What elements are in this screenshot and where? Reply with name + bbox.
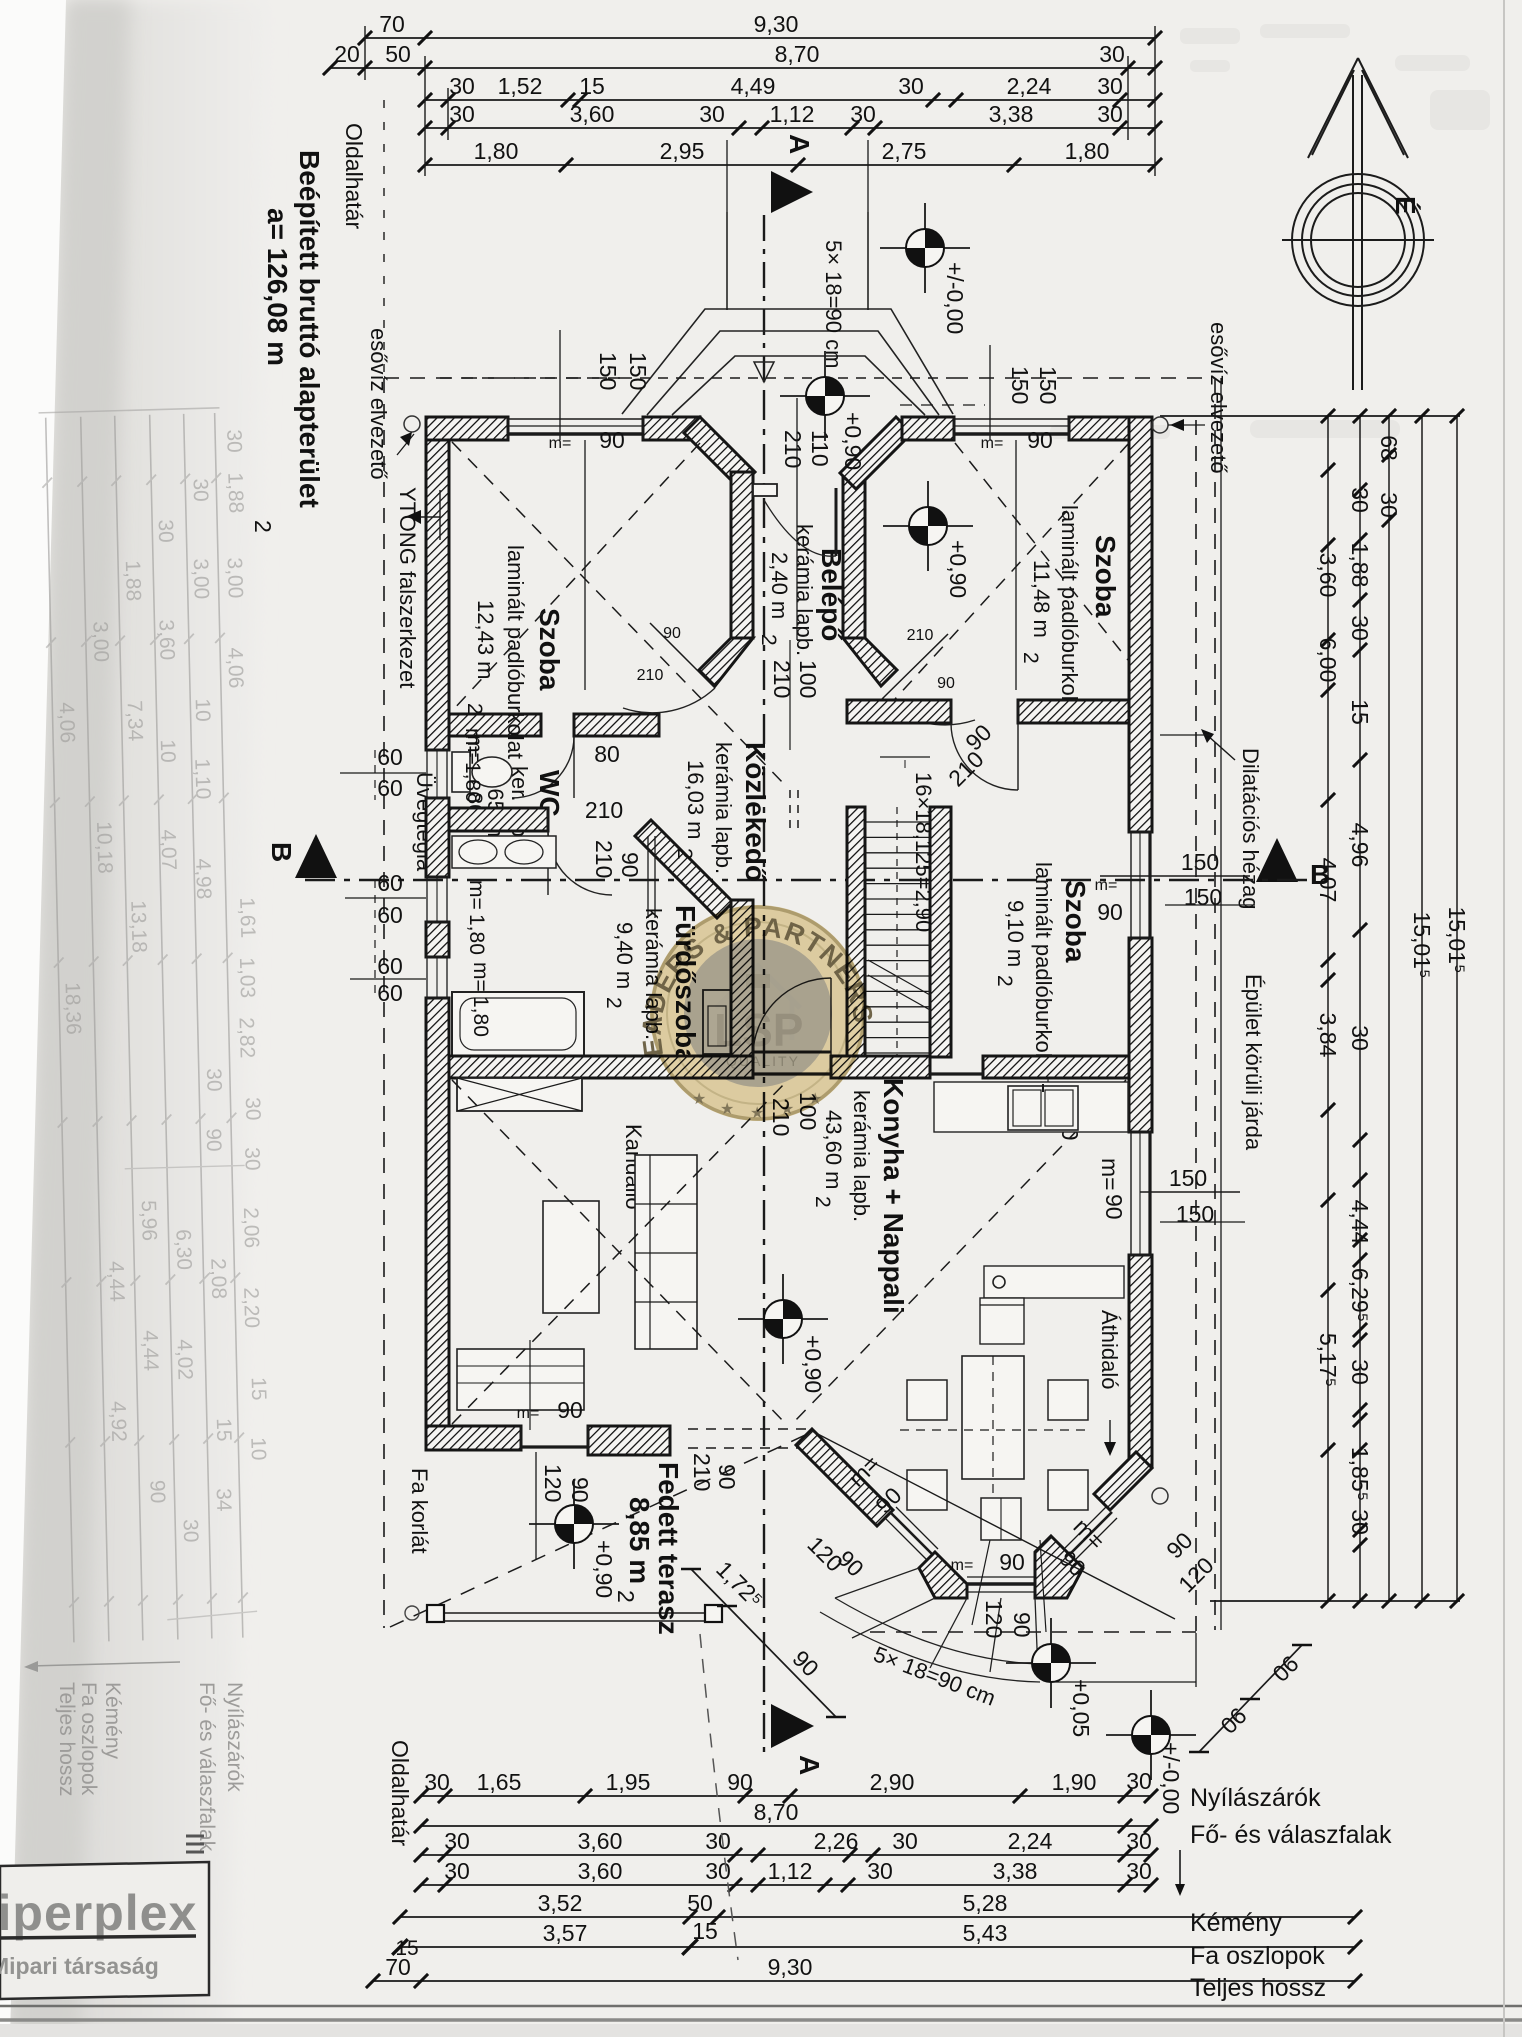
svg-text:+/-0,00: +/-0,00 xyxy=(942,262,968,334)
svg-text:B: B xyxy=(266,842,297,862)
svg-text:60: 60 xyxy=(377,953,403,979)
svg-text:2,06: 2,06 xyxy=(239,1207,263,1249)
svg-text:43,60 m: 43,60 m xyxy=(821,1110,846,1190)
svg-text:Oldalhatár: Oldalhatár xyxy=(341,123,367,229)
svg-text:4,06: 4,06 xyxy=(55,702,79,744)
svg-text:90: 90 xyxy=(937,675,955,692)
svg-text:+0,90: +0,90 xyxy=(800,1335,826,1393)
svg-text:18,36: 18,36 xyxy=(60,982,84,1035)
svg-text:1,80: 1,80 xyxy=(469,996,492,1037)
svg-text:laminált padlóburkolat: laminált padlóburkolat xyxy=(1057,505,1082,719)
svg-text:30: 30 xyxy=(705,1828,731,1854)
svg-text:1,95: 1,95 xyxy=(606,1769,651,1795)
svg-text:50: 50 xyxy=(385,41,411,67)
svg-text:QUALITY: QUALITY xyxy=(726,1053,800,1069)
svg-text:1,10: 1,10 xyxy=(190,758,214,800)
svg-text:50: 50 xyxy=(687,1890,713,1916)
svg-text:Fa oszlopok: Fa oszlopok xyxy=(1190,1942,1325,1970)
svg-text:LSP: LSP xyxy=(714,1004,803,1056)
svg-text:Oldalhatár: Oldalhatár xyxy=(387,1740,413,1846)
svg-text:2,90: 2,90 xyxy=(870,1769,915,1795)
svg-text:210: 210 xyxy=(769,660,795,698)
svg-text:30: 30 xyxy=(179,1519,203,1543)
svg-text:30: 30 xyxy=(867,1858,893,1884)
svg-text:90: 90 xyxy=(714,1464,740,1490)
svg-text:30: 30 xyxy=(202,1068,226,1092)
svg-text:Belépő: Belépő xyxy=(816,548,847,641)
svg-text:68: 68 xyxy=(1376,435,1402,461)
svg-text:6,29⁵: 6,29⁵ xyxy=(1347,1268,1373,1322)
svg-text:150: 150 xyxy=(595,352,621,390)
svg-text:150: 150 xyxy=(625,352,651,390)
svg-text:Szoba: Szoba xyxy=(1090,535,1121,618)
svg-text:4,44: 4,44 xyxy=(138,1330,162,1372)
svg-text:Fedett terasz: Fedett terasz xyxy=(653,1462,684,1635)
svg-text:3,00: 3,00 xyxy=(88,621,112,663)
svg-text:110: 110 xyxy=(807,430,833,467)
svg-text:★: ★ xyxy=(750,1105,764,1122)
svg-text:2: 2 xyxy=(993,975,1016,987)
svg-text:2,82: 2,82 xyxy=(235,1017,259,1059)
svg-text:90: 90 xyxy=(617,852,643,878)
svg-text:30: 30 xyxy=(444,1828,470,1854)
svg-text:Dilatációs hézag: Dilatációs hézag xyxy=(1238,748,1263,909)
svg-text:30: 30 xyxy=(699,101,725,127)
svg-text:13,18: 13,18 xyxy=(126,900,150,953)
svg-text:210: 210 xyxy=(689,1453,715,1491)
svg-text:90: 90 xyxy=(145,1480,169,1504)
svg-text:3,38: 3,38 xyxy=(993,1858,1038,1884)
svg-text:3,38: 3,38 xyxy=(989,101,1034,127)
svg-text:210: 210 xyxy=(637,667,664,684)
svg-text:Teljes hossz: Teljes hossz xyxy=(1190,1974,1326,2002)
svg-text:1,85⁵: 1,85⁵ xyxy=(1347,1447,1373,1501)
svg-text:1,88: 1,88 xyxy=(121,560,145,602)
svg-text:90: 90 xyxy=(1009,1612,1035,1638)
svg-text:2,40 m: 2,40 m xyxy=(767,552,792,619)
svg-text:Áthidaló: Áthidaló xyxy=(1097,1310,1122,1390)
svg-text:1,65: 1,65 xyxy=(477,1769,522,1795)
svg-text:2,24: 2,24 xyxy=(1007,73,1052,99)
svg-text:m=: m= xyxy=(517,1405,540,1422)
svg-text:90: 90 xyxy=(1027,427,1053,453)
svg-text:30: 30 xyxy=(1347,1025,1373,1051)
svg-text:30: 30 xyxy=(424,1769,450,1795)
svg-text:90: 90 xyxy=(202,1128,226,1152)
svg-text:1,03: 1,03 xyxy=(235,957,259,999)
svg-text:3,60: 3,60 xyxy=(578,1858,623,1884)
svg-text:15: 15 xyxy=(247,1377,271,1401)
svg-text:8,85 m: 8,85 m xyxy=(624,1497,655,1584)
svg-text:4,02: 4,02 xyxy=(172,1339,196,1381)
svg-text:30: 30 xyxy=(1347,1509,1373,1535)
svg-text:30: 30 xyxy=(222,429,246,453)
svg-text:2: 2 xyxy=(250,520,276,533)
svg-text:2,24: 2,24 xyxy=(1008,1828,1053,1854)
svg-text:210: 210 xyxy=(907,627,934,644)
svg-text:30: 30 xyxy=(241,1097,265,1121)
svg-text:3,60: 3,60 xyxy=(154,619,178,661)
svg-text:laminált padlóburkolat: laminált padlóburkolat xyxy=(1031,862,1056,1076)
svg-text:10: 10 xyxy=(246,1437,270,1461)
svg-text:+/-0,00: +/-0,00 xyxy=(1158,1742,1184,1814)
svg-text:★: ★ xyxy=(692,1091,706,1108)
svg-text:90: 90 xyxy=(1097,899,1123,925)
svg-text:m=: m= xyxy=(1097,1158,1123,1191)
svg-text:210: 210 xyxy=(780,430,806,468)
svg-text:6,30: 6,30 xyxy=(171,1229,195,1271)
svg-text:60: 60 xyxy=(377,775,403,801)
svg-text:60: 60 xyxy=(377,744,403,770)
svg-text:1,80: 1,80 xyxy=(461,762,484,803)
svg-text:30: 30 xyxy=(898,73,924,99)
svg-text:120: 120 xyxy=(540,1464,566,1502)
svg-text:m=: m= xyxy=(951,1557,974,1574)
svg-text:150: 150 xyxy=(1176,1201,1214,1227)
svg-text:1,88: 1,88 xyxy=(1347,543,1373,588)
svg-text:2: 2 xyxy=(811,1196,834,1208)
svg-text:Mipari társaság: Mipari társaság xyxy=(0,1953,159,1979)
svg-text:3,60: 3,60 xyxy=(578,1828,623,1854)
svg-text:6,00: 6,00 xyxy=(1315,638,1341,683)
svg-text:60: 60 xyxy=(377,902,403,928)
svg-text:90: 90 xyxy=(663,625,681,642)
svg-text:4,07: 4,07 xyxy=(156,829,180,871)
svg-text:30: 30 xyxy=(1126,1768,1152,1794)
svg-text:2,26: 2,26 xyxy=(814,1828,859,1854)
svg-text:90: 90 xyxy=(557,1397,583,1423)
svg-text:É: É xyxy=(1390,196,1421,215)
svg-text:150: 150 xyxy=(1184,884,1222,910)
svg-text:2: 2 xyxy=(463,703,486,715)
svg-text:5,96: 5,96 xyxy=(137,1200,161,1242)
svg-text:★: ★ xyxy=(720,1101,734,1118)
svg-text:10: 10 xyxy=(191,698,215,722)
svg-text:1,52: 1,52 xyxy=(498,73,543,99)
svg-text:Szoba: Szoba xyxy=(534,608,565,691)
svg-text:30: 30 xyxy=(1097,101,1123,127)
svg-text:2,20: 2,20 xyxy=(239,1287,263,1329)
svg-text:2: 2 xyxy=(757,634,780,646)
svg-text:30: 30 xyxy=(188,478,212,502)
svg-text:90: 90 xyxy=(999,1549,1025,1575)
svg-text:30: 30 xyxy=(1347,487,1373,513)
svg-text:2,75: 2,75 xyxy=(882,138,927,164)
svg-text:150: 150 xyxy=(1181,849,1219,875)
svg-text:120: 120 xyxy=(981,1600,1007,1638)
svg-text:1,12: 1,12 xyxy=(770,101,815,127)
svg-text:a= 126,08 m: a= 126,08 m xyxy=(262,208,293,366)
svg-text:★: ★ xyxy=(780,1101,794,1118)
svg-text:60: 60 xyxy=(377,980,403,1006)
svg-text:1,12: 1,12 xyxy=(768,1858,813,1884)
svg-text:3,57: 3,57 xyxy=(543,1920,588,1946)
svg-text:30: 30 xyxy=(1347,1359,1373,1385)
svg-text:1,88: 1,88 xyxy=(223,472,247,514)
svg-text:30: 30 xyxy=(1097,73,1123,99)
svg-text:esővíz elvezető: esővíz elvezető xyxy=(1206,322,1231,474)
svg-text:11,48 m: 11,48 m xyxy=(1029,560,1054,638)
svg-text:5× 18=90 cm: 5× 18=90 cm xyxy=(821,240,846,368)
svg-text:90: 90 xyxy=(599,427,625,453)
svg-text:30: 30 xyxy=(850,101,876,127)
svg-text:30: 30 xyxy=(449,101,475,127)
svg-text:4,44: 4,44 xyxy=(104,1261,128,1303)
svg-text:Teljes hossz: Teljes hossz xyxy=(55,1682,78,1796)
svg-text:m=: m= xyxy=(465,880,488,910)
svg-text:3,52: 3,52 xyxy=(538,1890,583,1916)
svg-text:Épület körüli járda: Épület körüli járda xyxy=(1241,974,1266,1151)
svg-text:12,43 m: 12,43 m xyxy=(473,600,498,680)
svg-text:10,18: 10,18 xyxy=(92,821,116,874)
svg-text:1,80: 1,80 xyxy=(474,138,519,164)
svg-text:30: 30 xyxy=(444,1858,470,1884)
svg-text:2,95: 2,95 xyxy=(660,138,705,164)
svg-text:9,30: 9,30 xyxy=(754,11,799,37)
svg-text:30: 30 xyxy=(1376,492,1402,518)
svg-text:2: 2 xyxy=(1019,652,1042,664)
svg-text:5,43: 5,43 xyxy=(963,1920,1008,1946)
svg-text:150: 150 xyxy=(1169,1165,1207,1191)
svg-text:30: 30 xyxy=(240,1147,264,1171)
svg-text:m=: m= xyxy=(461,728,484,758)
svg-text:Fő- és válaszfalak: Fő- és válaszfalak xyxy=(1190,1821,1392,1849)
svg-text:7,34: 7,34 xyxy=(123,700,147,742)
svg-text:210: 210 xyxy=(591,840,617,878)
svg-text:3,60: 3,60 xyxy=(570,101,615,127)
svg-text:15: 15 xyxy=(579,73,605,99)
svg-text:15: 15 xyxy=(1347,699,1373,725)
svg-text:30: 30 xyxy=(449,73,475,99)
svg-text:1,80: 1,80 xyxy=(1065,138,1110,164)
svg-text:Fő- és válaszfalak: Fő- és válaszfalak xyxy=(195,1682,218,1852)
svg-text:esővíz elvezető: esővíz elvezető xyxy=(366,328,391,480)
svg-text:90: 90 xyxy=(567,1477,593,1503)
svg-text:9,10 m: 9,10 m xyxy=(1003,900,1028,967)
svg-text:Kémény: Kémény xyxy=(1190,1909,1282,1937)
svg-text:kerámia lapb.: kerámia lapb. xyxy=(792,524,817,656)
svg-text:Nyílászárók: Nyílászárók xyxy=(223,1682,246,1792)
svg-text:kerámia lapb.: kerámia lapb. xyxy=(849,1090,874,1222)
svg-text:2,08: 2,08 xyxy=(206,1258,230,1300)
svg-text:4,49: 4,49 xyxy=(731,73,776,99)
svg-text:30: 30 xyxy=(1347,615,1373,641)
svg-text:3,00: 3,00 xyxy=(223,557,247,599)
svg-text:150: 150 xyxy=(1007,366,1033,404)
svg-text:10: 10 xyxy=(156,739,180,763)
svg-text:20: 20 xyxy=(334,41,360,67)
svg-text:15: 15 xyxy=(212,1418,236,1442)
svg-text:5,17⁵: 5,17⁵ xyxy=(1315,1333,1341,1387)
svg-text:1,61: 1,61 xyxy=(235,897,259,939)
svg-text:60: 60 xyxy=(377,870,403,896)
svg-text:16,03 m: 16,03 m xyxy=(683,760,708,840)
svg-text:A: A xyxy=(794,1755,825,1775)
svg-text:+0,90: +0,90 xyxy=(840,412,866,470)
svg-text:Konyha + Nappali: Konyha + Nappali xyxy=(878,1078,909,1314)
svg-text:150: 150 xyxy=(1035,366,1061,404)
svg-text:Fa korlát: Fa korlát xyxy=(407,1468,432,1554)
svg-text:3,60: 3,60 xyxy=(1315,553,1341,598)
svg-text:1,80: 1,80 xyxy=(465,914,488,955)
svg-text:5,28: 5,28 xyxy=(963,1890,1008,1916)
svg-text:Szoba: Szoba xyxy=(1060,880,1091,963)
svg-text:30: 30 xyxy=(1126,1858,1152,1884)
svg-text:2: 2 xyxy=(602,997,625,1009)
svg-text:4,44: 4,44 xyxy=(1347,1200,1373,1245)
svg-text:9,40 m: 9,40 m xyxy=(612,922,637,989)
svg-text:Közlekedő: Közlekedő xyxy=(740,742,771,882)
svg-text:A: A xyxy=(784,134,815,154)
svg-text:30: 30 xyxy=(892,1828,918,1854)
svg-text:210: 210 xyxy=(585,797,623,823)
svg-text:70: 70 xyxy=(379,11,405,37)
svg-text:9,30: 9,30 xyxy=(768,1954,813,1980)
svg-text:34: 34 xyxy=(212,1488,236,1512)
svg-text:30: 30 xyxy=(154,519,178,543)
svg-text:30: 30 xyxy=(1126,1828,1152,1854)
svg-text:4,06: 4,06 xyxy=(223,647,247,689)
svg-text:m=: m= xyxy=(981,435,1004,452)
svg-text:8,70: 8,70 xyxy=(754,1799,799,1825)
svg-text:1,90: 1,90 xyxy=(1052,1769,1097,1795)
svg-text:4,98: 4,98 xyxy=(191,858,215,900)
svg-text:Beépített bruttó alapterület: Beépített bruttó alapterület xyxy=(294,150,325,508)
svg-text:kerámia lapb.: kerámia lapb. xyxy=(711,742,736,874)
svg-text:+0,90: +0,90 xyxy=(945,540,971,598)
svg-text:m=: m= xyxy=(469,962,492,992)
svg-text:B: B xyxy=(1310,859,1330,890)
svg-text:90: 90 xyxy=(1101,1194,1127,1220)
svg-text:15,01⁵: 15,01⁵ xyxy=(1409,911,1435,978)
svg-text:16×18,125=2,90: 16×18,125=2,90 xyxy=(911,772,936,932)
svg-text:4,96: 4,96 xyxy=(1347,823,1373,868)
svg-text:80: 80 xyxy=(594,741,620,767)
svg-text:Kémény: Kémény xyxy=(101,1682,124,1760)
svg-text:15: 15 xyxy=(692,1918,718,1944)
svg-text:hiperplex: hiperplex xyxy=(0,1885,197,1941)
svg-text:+0,05: +0,05 xyxy=(1068,1679,1094,1737)
svg-text:m=: m= xyxy=(1095,877,1118,894)
svg-text:8,70: 8,70 xyxy=(775,41,820,67)
svg-text:30: 30 xyxy=(1099,41,1125,67)
svg-text:15,01⁵: 15,01⁵ xyxy=(1444,906,1470,973)
svg-text:3,84: 3,84 xyxy=(1315,1013,1341,1058)
svg-text:100: 100 xyxy=(795,660,821,698)
svg-text:Fa oszlopok: Fa oszlopok xyxy=(77,1682,100,1796)
svg-text:3,00: 3,00 xyxy=(189,558,213,600)
svg-text:4,92: 4,92 xyxy=(106,1401,130,1443)
svg-text:2: 2 xyxy=(673,848,696,860)
svg-text:70: 70 xyxy=(385,1954,411,1980)
svg-text:Nyílászárók: Nyílászárók xyxy=(1190,1784,1321,1812)
svg-text:+0,90: +0,90 xyxy=(591,1540,617,1598)
svg-text:★: ★ xyxy=(808,1091,822,1108)
svg-text:90: 90 xyxy=(727,1769,753,1795)
